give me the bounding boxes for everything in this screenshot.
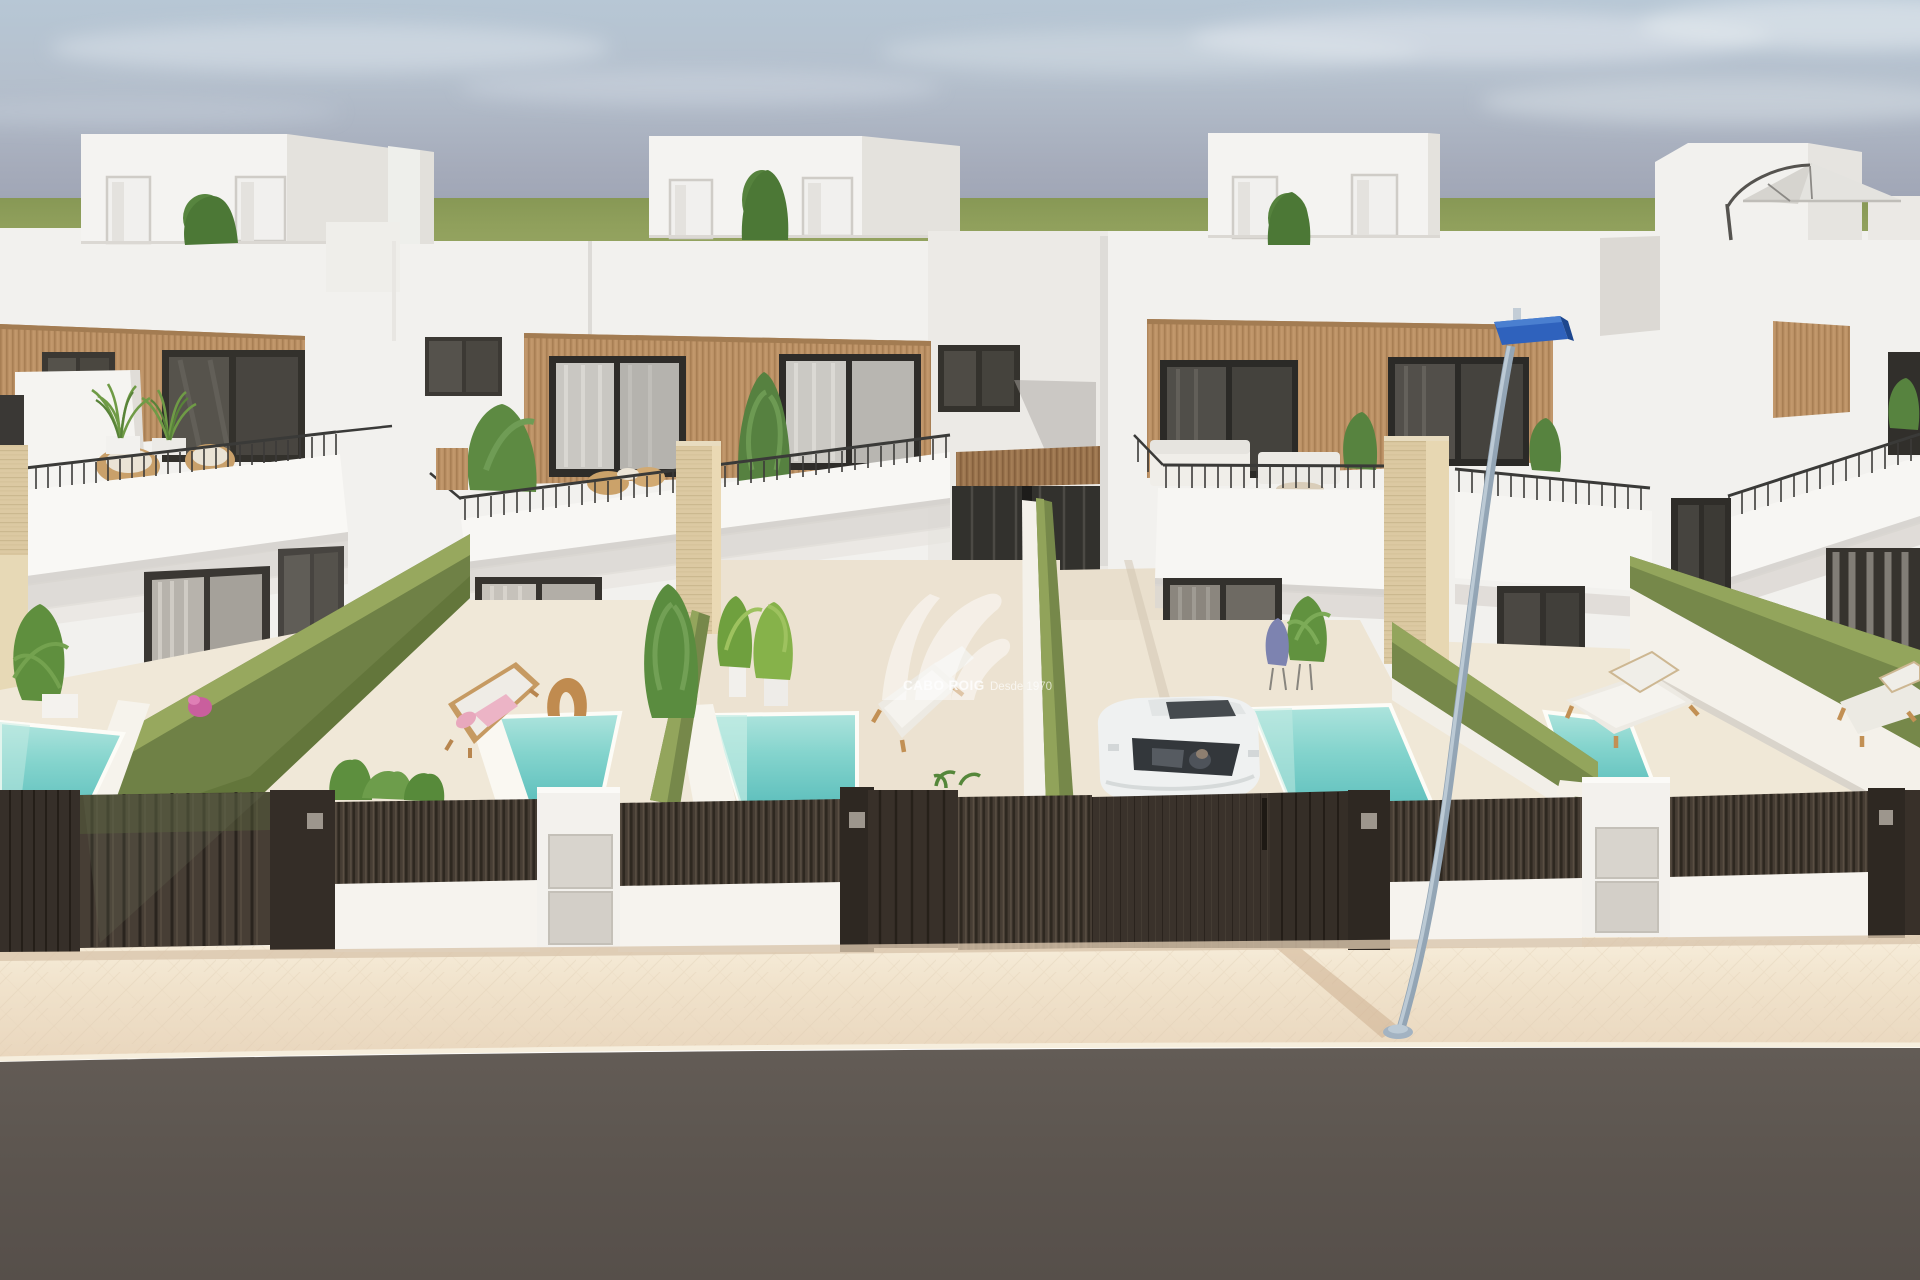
svg-text:CABO ROIG: CABO ROIG xyxy=(903,678,985,693)
svg-text:Desde 1970: Desde 1970 xyxy=(990,681,1052,693)
